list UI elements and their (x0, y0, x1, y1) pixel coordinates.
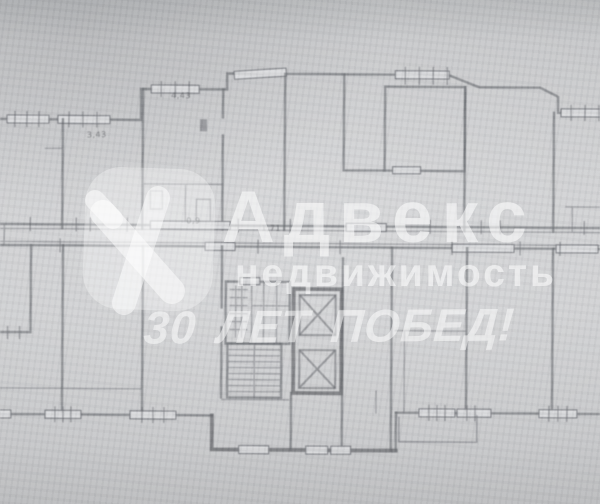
window-sill (556, 245, 598, 253)
dimension-label: 4,43 (171, 91, 191, 100)
door-opening (240, 278, 260, 285)
ventilation-shaft (225, 277, 289, 343)
window-sill (58, 115, 110, 123)
dimension-label: 0,9 (186, 216, 200, 225)
dimension-label: 3,43 (87, 130, 107, 140)
floorplan-photo: 3,43 4,43 0,9 1,71 Адвекс недвижимость 3… (0, 0, 600, 504)
floorplan-drawing: 3,43 4,43 0,9 1,71 (0, 0, 600, 504)
upper-apartment-walls (44, 72, 600, 232)
dimension-labels: 3,43 4,43 0,9 1,71 (86, 91, 282, 233)
window-sill (452, 244, 514, 252)
staircase (227, 343, 281, 397)
window-sill (306, 446, 328, 454)
window-sill (395, 71, 449, 79)
top-facade-walls (1, 64, 600, 134)
window-sill (0, 410, 11, 418)
window-sill (561, 109, 600, 117)
window-sill (457, 409, 491, 417)
window-sill (331, 446, 351, 454)
door-opening (393, 167, 421, 174)
mid-corridor-walls (0, 217, 600, 256)
stair-lift-core (221, 246, 392, 450)
lower-right-apartment-walls (394, 248, 600, 443)
door-opening (239, 446, 269, 454)
elevator-shaft (293, 289, 342, 393)
door-opening (205, 242, 235, 250)
lower-left-apartment-walls (0, 245, 213, 423)
entrance-vestibule (212, 392, 396, 454)
window-sill (234, 68, 286, 79)
dimension-label: 1,71 (261, 224, 281, 233)
window-sill (7, 115, 49, 123)
window-sill (346, 223, 386, 231)
wall-pier (200, 119, 207, 131)
balcony-railing (399, 415, 477, 443)
